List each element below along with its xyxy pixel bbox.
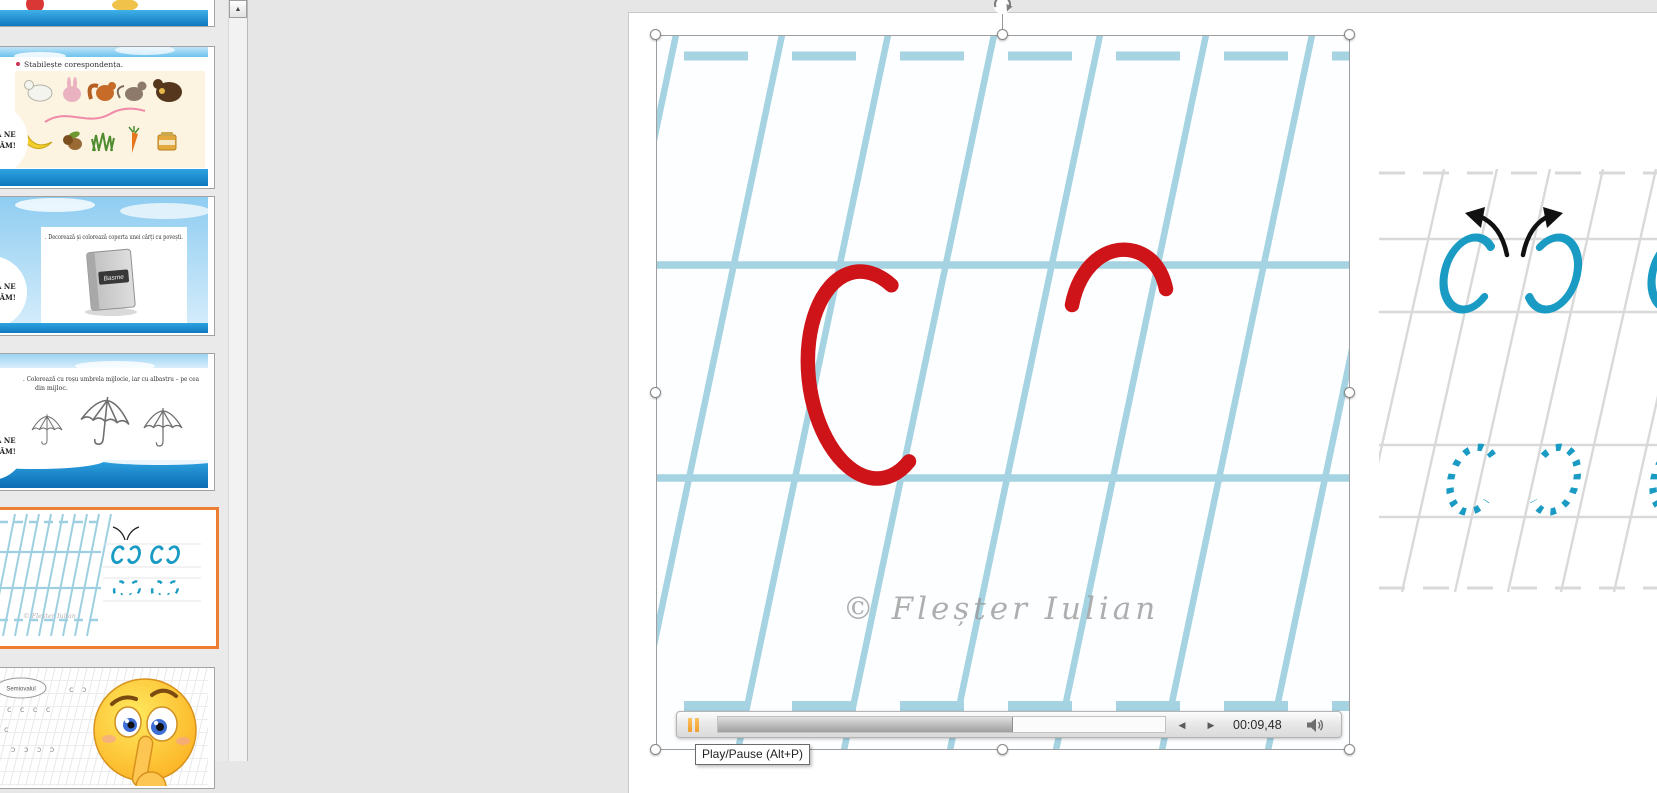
svg-text:ɔ ɔ ɔ ɔ: ɔ ɔ ɔ ɔ	[11, 745, 57, 754]
scroll-up-button[interactable]: ▲	[229, 0, 247, 18]
elapsed-time: 00:09,48	[1233, 718, 1282, 732]
slide-5-preview: © Fleșter Iulian	[0, 510, 204, 640]
honey-image	[158, 132, 176, 150]
seek-progress	[718, 717, 1013, 732]
practice-grid-rules	[1379, 173, 1657, 588]
step-back-button[interactable]: ◀	[1169, 712, 1195, 737]
resize-handle-top-center[interactable]	[997, 29, 1008, 40]
slide-6-preview: Semiovalul c ɔ c c c c c c ɔ ɔ ɔ ɔ	[0, 668, 208, 786]
up-arrow-icon: ▲	[235, 6, 242, 13]
slide-3-preview: . Decorează și colorează coperta unei că…	[0, 197, 208, 333]
step-forward-button[interactable]: ▶	[1198, 712, 1224, 737]
letter-row-solid	[1438, 237, 1657, 309]
rotation-handle[interactable]	[991, 0, 1014, 16]
letter-practice-image[interactable]	[1379, 169, 1657, 592]
slide-canvas: © Fleșter Iulian ◀ ▶ 00:09	[248, 0, 1657, 761]
slide-4-title-line1: . Colorează cu roșu umbrela mijlocie, ia…	[23, 376, 199, 383]
semioval-label: Semiovalul	[6, 687, 35, 693]
play-pause-tooltip: Play/Pause (Alt+P)	[695, 744, 810, 765]
resize-handle-bottom-right[interactable]	[1344, 744, 1355, 755]
svg-text:c ɔ: c ɔ	[69, 685, 89, 694]
resize-handle-top-right[interactable]	[1344, 29, 1355, 40]
mute-button[interactable]	[1306, 718, 1325, 733]
slide-thumbnail-panel: Stabilește corespondența.	[0, 0, 228, 761]
bullet-icon	[16, 62, 20, 66]
slide-thumbnail-2[interactable]: Stabilește corespondența.	[0, 46, 215, 189]
mini-watermark: © Fleșter Iulian	[23, 612, 76, 620]
pause-button[interactable]	[688, 718, 702, 733]
resize-handle-bottom-center[interactable]	[997, 744, 1008, 755]
svg-text:c c: c c	[0, 725, 11, 734]
media-control-bar: ◀ ▶ 00:09,48	[676, 711, 1342, 738]
svg-text:Ă NE: Ă NE	[0, 282, 16, 291]
video-selection-border	[656, 35, 1350, 750]
svg-text:c c c c: c c c c	[7, 705, 53, 714]
book-image: Basme	[86, 249, 135, 311]
pause-bar-icon	[695, 718, 699, 732]
slide-1-preview	[0, 0, 208, 26]
slide-thumbnail-5-selected[interactable]: © Fleșter Iulian	[0, 507, 219, 649]
slide-thumbnail-3[interactable]: . Decorează și colorează coperta unei că…	[0, 196, 215, 336]
resize-handle-bottom-left[interactable]	[650, 744, 661, 755]
svg-text:Ă NE: Ă NE	[0, 130, 16, 139]
pause-bar-icon	[688, 718, 692, 732]
resize-handle-middle-left[interactable]	[650, 387, 661, 398]
svg-text:CĂM!: CĂM!	[0, 141, 16, 150]
letter-row-dotted	[1445, 447, 1657, 512]
thumbnail-scrollbar[interactable]: ▲	[228, 0, 248, 761]
seek-bar[interactable]	[717, 716, 1166, 733]
svg-text:CĂM!: CĂM!	[0, 293, 16, 302]
svg-text:Ă NE: Ă NE	[0, 436, 16, 445]
slide-3-title: . Decorează și colorează coperta unei că…	[45, 234, 183, 241]
resize-handle-top-left[interactable]	[650, 29, 661, 40]
slide-thumbnail-6[interactable]: Semiovalul c ɔ c c c c c c ɔ ɔ ɔ ɔ	[0, 667, 215, 789]
resize-handle-middle-right[interactable]	[1344, 387, 1355, 398]
slide-2-preview: Stabilește corespondența.	[0, 47, 208, 186]
slide-4-preview: . Colorează cu roșu umbrela mijlocie, ia…	[0, 354, 208, 488]
practice-grid-slants	[1379, 169, 1657, 592]
slide-thumbnail-4[interactable]: . Colorează cu roșu umbrela mijlocie, ia…	[0, 353, 215, 491]
slide-2-title: Stabilește corespondența.	[24, 60, 123, 69]
slide-4-title-line2: din mijloc.	[35, 385, 68, 392]
slide-thumbnail-1[interactable]	[0, 0, 215, 27]
svg-text:CĂM!: CĂM!	[0, 447, 16, 456]
